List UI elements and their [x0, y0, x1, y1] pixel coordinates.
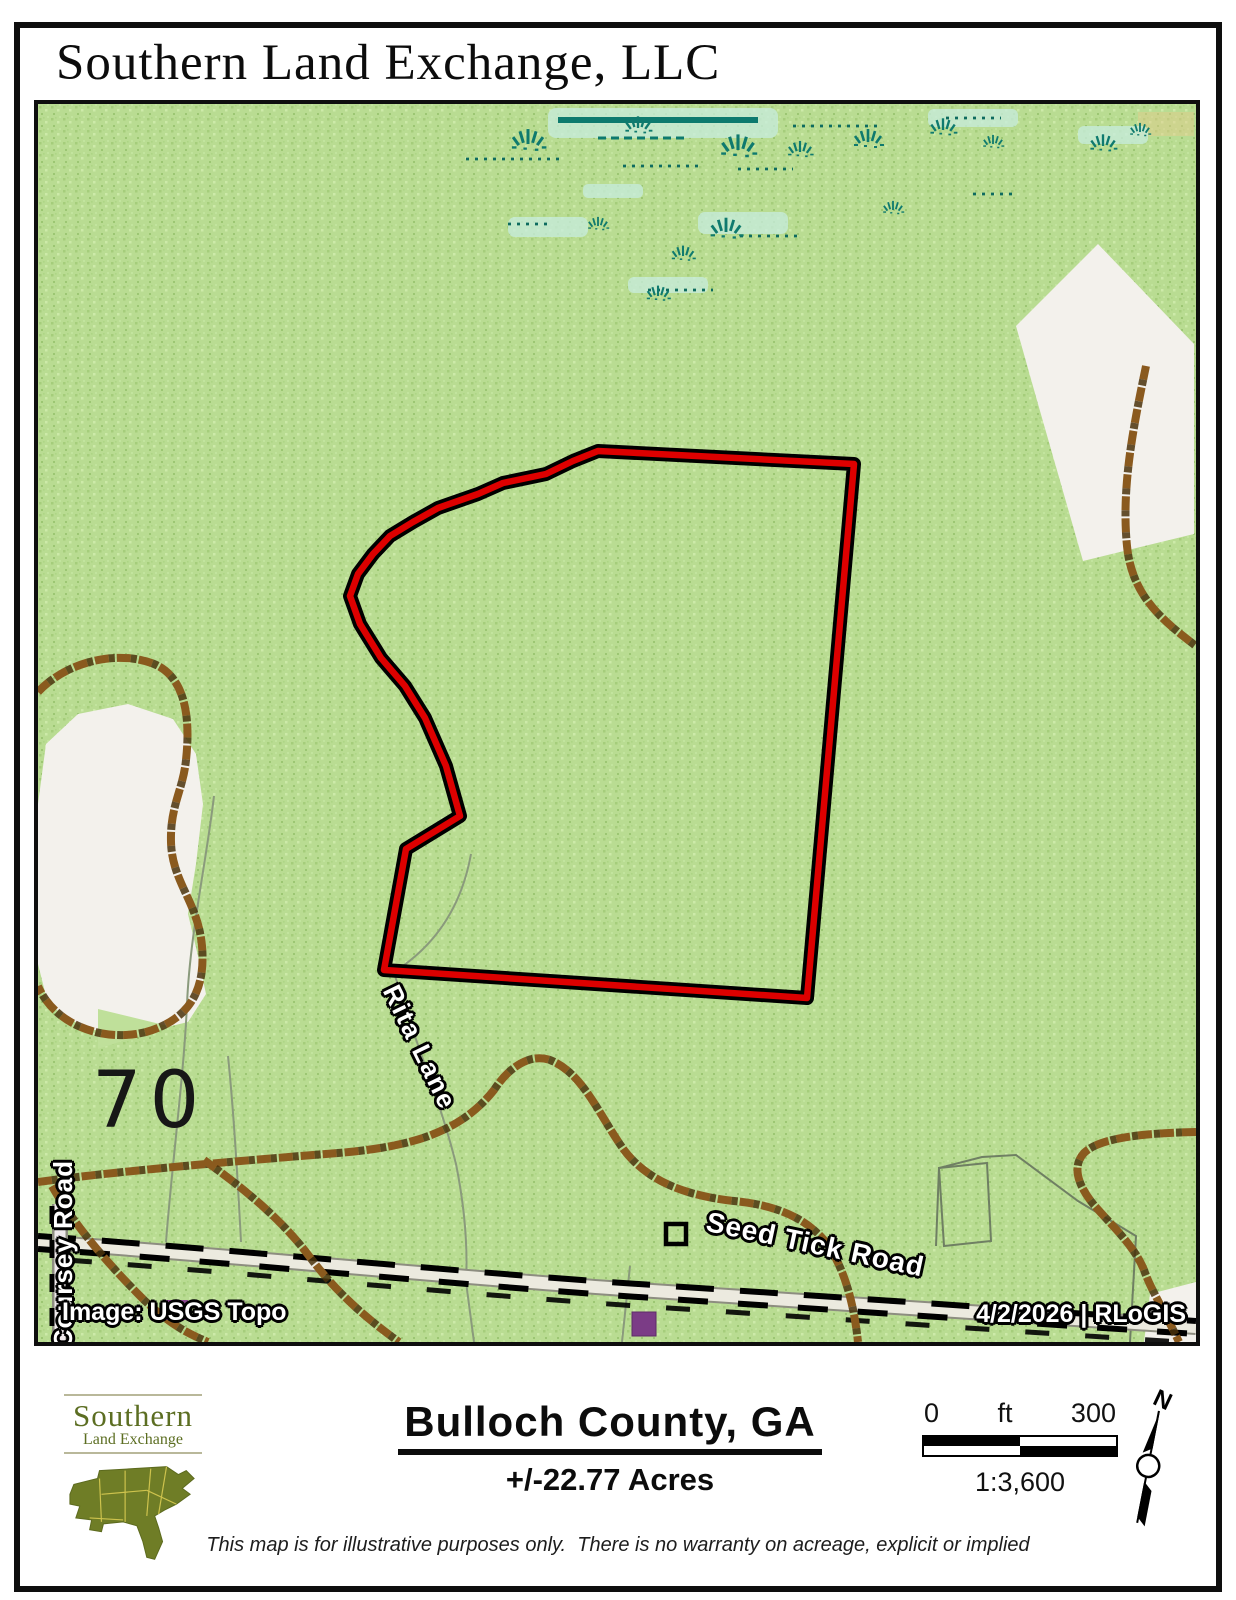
scale-max: 300: [1071, 1398, 1116, 1429]
scale-ratio: 1:3,600: [922, 1467, 1118, 1498]
scale-bar: [922, 1435, 1118, 1457]
imagery-credit: Image: USGS Topo: [62, 1298, 287, 1327]
county-title: Bulloch County, GA: [398, 1398, 822, 1455]
scale-unit: ft: [997, 1398, 1012, 1429]
logo-rule-top: [64, 1394, 202, 1396]
scale-bar-segment: [1020, 1446, 1116, 1455]
topo-map: [38, 104, 1196, 1342]
topo-lot-number: 70: [92, 1056, 207, 1146]
building-purple: [632, 1312, 656, 1336]
map-title-block: Bulloch County, GA +/-22.77 Acres: [280, 1398, 940, 1498]
scale-bar-block: 0 ft 300 1:3,600: [922, 1398, 1118, 1498]
north-arrow: N: [1112, 1380, 1186, 1544]
logo-name: Southern: [64, 1398, 202, 1434]
map-viewport: Rita Lane Seed Tick Road Coursey Road 70…: [34, 100, 1200, 1346]
map-sheet: Southern Land Exchange, LLC: [0, 0, 1236, 1600]
scale-numbers: 0 ft 300: [922, 1398, 1118, 1429]
north-letter: N: [1149, 1384, 1176, 1416]
date-gis-stamp: 4/2/2026 | RLoGIS: [976, 1300, 1186, 1329]
logo-subname: Land Exchange: [64, 1431, 202, 1449]
scale-bar-segment: [1020, 1437, 1116, 1446]
company-title: Southern Land Exchange, LLC: [56, 34, 720, 92]
acreage-label: +/-22.77 Acres: [280, 1462, 940, 1498]
land-base: [38, 104, 1196, 1342]
scale-bar-segment: [924, 1446, 1020, 1455]
scale-bar-segment: [924, 1437, 1020, 1446]
scale-zero: 0: [924, 1398, 939, 1429]
logo-rule-bottom: [64, 1452, 202, 1454]
disclaimer-text: This map is for illustrative purposes on…: [0, 1534, 1236, 1557]
